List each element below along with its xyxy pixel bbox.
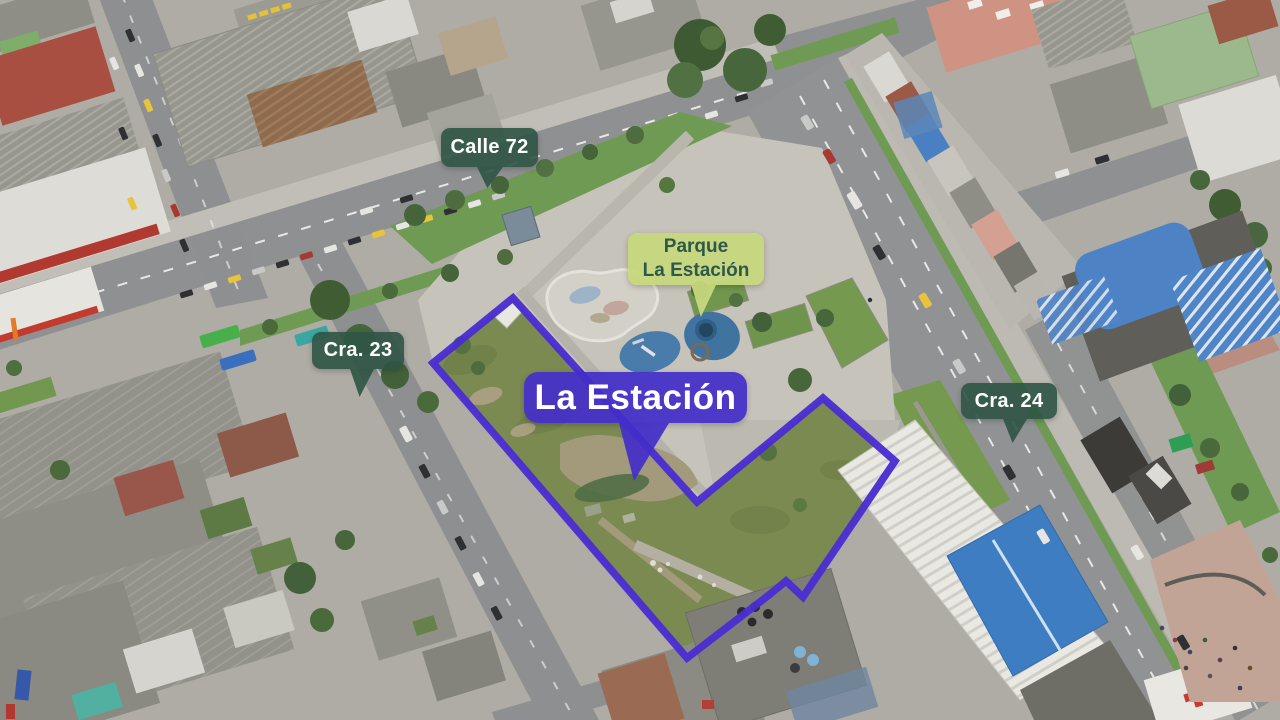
- lot-label: La Estación: [524, 372, 747, 423]
- street-label-cra-24: Cra. 24: [961, 383, 1057, 419]
- lot-label-text: La Estación: [535, 378, 737, 418]
- aerial-photo: Calle 72 Parque La Estación Cra. 23 Cra.…: [0, 0, 1280, 720]
- lot-outline-overlay: [0, 0, 1280, 720]
- park-label-line1: Parque: [664, 235, 728, 259]
- street-label-cra-23-text: Cra. 23: [324, 339, 393, 362]
- park-label: Parque La Estación: [628, 233, 764, 285]
- street-label-cra-24-text: Cra. 24: [975, 390, 1044, 413]
- street-label-calle-72: Calle 72: [441, 128, 538, 167]
- lot-boundary: [433, 298, 895, 658]
- street-label-calle-72-text: Calle 72: [450, 136, 528, 159]
- street-label-cra-23: Cra. 23: [312, 332, 404, 369]
- park-label-line2: La Estación: [643, 259, 750, 283]
